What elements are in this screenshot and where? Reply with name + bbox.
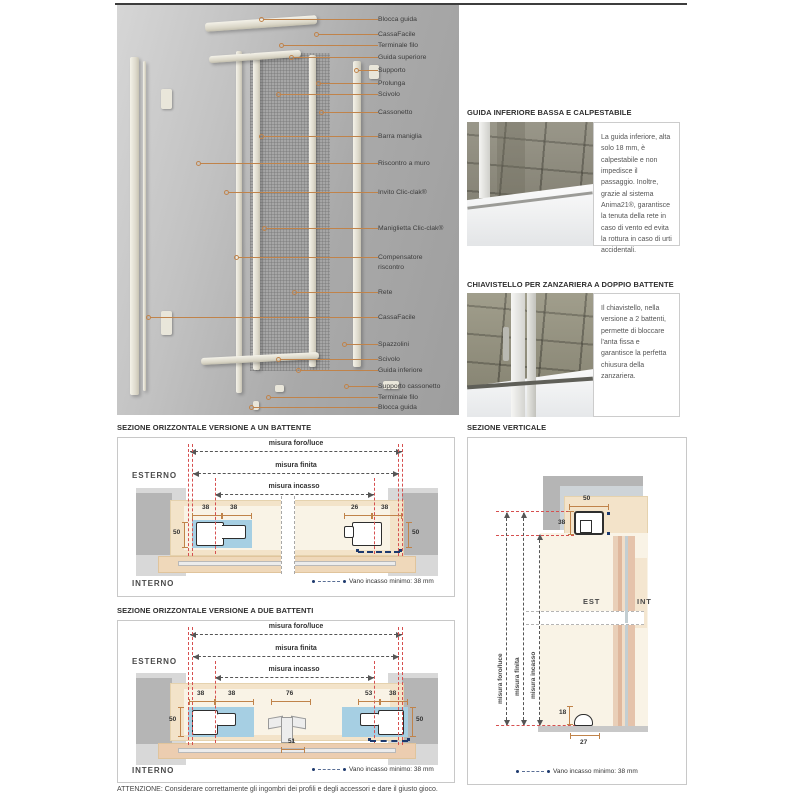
glass-line (625, 611, 628, 623)
legend-dot-icon (343, 768, 346, 771)
part-label: Riscontro a muro (378, 159, 430, 169)
lower-guide-profile (574, 714, 593, 726)
dim-value: 38 (197, 690, 204, 697)
dim-arrow (193, 656, 399, 657)
legend: Vano incasso minimo: 38 mm (312, 766, 434, 773)
part-label: Scivolo (378, 90, 400, 100)
leader-line (346, 344, 378, 345)
vano-incasso-marker (358, 551, 400, 553)
leader-line (263, 19, 378, 20)
reference-line (374, 478, 375, 554)
part-label-row: Guida inferiore (117, 366, 459, 376)
section-one-drawing: misura foro/luce misura finita misura in… (117, 437, 455, 597)
dim-value: 26 (351, 504, 358, 511)
section-two-drawing: misura foro/luce misura finita misura in… (117, 620, 455, 783)
latch-pin (503, 327, 509, 361)
dim-arrow-v (506, 513, 507, 725)
dim-line-v (412, 707, 413, 737)
break-lines (281, 496, 295, 574)
dim-label-finita: misura finita (514, 657, 521, 696)
cassette-arm (217, 713, 236, 726)
dim-arrow (190, 634, 402, 635)
part-label-row: Terminale filo (117, 393, 459, 403)
card1-body: La guida inferiore, alta solo 18 mm, è c… (601, 132, 672, 257)
section-vertical-title: SEZIONE VERTICALE (467, 423, 546, 432)
marker-end (607, 532, 610, 535)
dim-line (222, 515, 252, 516)
reference-line (192, 444, 193, 556)
card1-title: GUIDA INFERIORE BASSA E CALPESTABILE (467, 108, 632, 117)
dim-value: 18 (559, 709, 566, 716)
footer-warning: ATTENZIONE: Considerare correttamente gl… (117, 786, 438, 793)
dim-line (569, 506, 609, 507)
frame-profile (479, 122, 490, 198)
leader-line (280, 94, 378, 95)
part-label: Blocca guida (378, 15, 417, 25)
window-frame (613, 536, 635, 728)
esterno-label: ESTERNO (132, 471, 177, 480)
strike-hook (344, 526, 354, 538)
legend-dash (318, 581, 340, 582)
dim-line (372, 515, 402, 516)
vano-incasso-marker (370, 740, 408, 742)
card2-text-panel: Il chiavistello, nella versione a 2 batt… (593, 293, 680, 417)
leader-line (293, 57, 378, 58)
dim-line (271, 701, 311, 702)
dim-label-foro-luce: misura foro/luce (269, 440, 323, 447)
leader-line (266, 228, 378, 229)
part-label-row: Scivolo (117, 90, 459, 100)
wall (136, 493, 172, 555)
dim-line (192, 515, 222, 516)
marker-end (356, 549, 359, 552)
section-one-title: SEZIONE ORIZZONTALE VERSIONE A UN BATTEN… (117, 423, 311, 432)
est-label: EST (583, 597, 600, 606)
dim-label-finita: misura finita (275, 645, 317, 652)
reference-line (402, 627, 403, 745)
exploded-parts-photo: Blocca guidaCassaFacileTerminale filoGui… (117, 5, 459, 415)
part-label-row: Scivolo (117, 355, 459, 365)
part-label: Guida inferiore (378, 366, 423, 376)
card1-text-panel: La guida inferiore, alta solo 18 mm, è c… (593, 122, 680, 246)
part-label-row: Cassonetto (117, 108, 459, 118)
part-label-row: Supporto (117, 66, 459, 76)
part-label: Blocca guida (378, 403, 417, 413)
dim-line-v (184, 522, 185, 548)
part-label-row: Blocca guida (117, 403, 459, 413)
part-label-row: CassaFacile (117, 313, 459, 323)
int-label: INT (637, 597, 652, 606)
dim-label-incasso: misura incasso (269, 483, 320, 490)
reference-line (374, 661, 375, 743)
dim-arrow-v (523, 513, 524, 725)
dim-line-v (180, 707, 181, 737)
reference-line (215, 478, 216, 554)
legend-text: Vano incasso minimo: 38 mm (553, 768, 638, 775)
reference-line (402, 444, 403, 556)
card2: Il chiavistello, nella versione a 2 batt… (467, 293, 680, 417)
part-label: Supporto (378, 66, 406, 76)
leader-line (150, 317, 378, 318)
dim-value: 38 (230, 504, 237, 511)
leader-line (358, 70, 378, 71)
dim-label-foro-luce: misura foro/luce (269, 623, 323, 630)
part-label: CassaFacile (378, 313, 415, 323)
part-label-row: Supporto cassonetto (117, 382, 459, 392)
dim-label-incasso: misura incasso (269, 666, 320, 673)
card2-body: Il chiavistello, nella versione a 2 batt… (601, 303, 672, 382)
floor (538, 726, 648, 732)
reference-line (188, 444, 189, 556)
dim-arrow (193, 473, 399, 474)
part-label-row: Terminale filo (117, 41, 459, 51)
part-label: Cassonetto (378, 108, 412, 118)
leader-line (200, 163, 378, 164)
part-label-row: Maniglietta Clic-clak® (117, 224, 459, 234)
dim-line-v (408, 522, 409, 548)
legend: Vano incasso minimo: 38 mm (516, 768, 638, 775)
leader-line (280, 359, 378, 360)
frame-profile (527, 293, 536, 417)
part-label: Terminale filo (378, 41, 418, 51)
dim-value: 38 (228, 690, 235, 697)
leader-line (323, 112, 378, 113)
dim-line (570, 735, 600, 736)
part-label-row: Barra maniglia (117, 132, 459, 142)
dim-line-v (570, 511, 571, 535)
card2-photo (467, 293, 593, 417)
wall (136, 678, 172, 744)
leader-line (283, 45, 378, 46)
card1-photo (467, 122, 593, 246)
marker-end (607, 512, 610, 515)
legend-dash (318, 769, 340, 770)
dim-value: 53 (365, 690, 372, 697)
dim-arrow (190, 451, 402, 452)
part-label: Maniglietta Clic-clak® (378, 224, 443, 234)
part-label-row: Riscontro a muro (117, 159, 459, 169)
legend-text: Vano incasso minimo: 38 mm (349, 578, 434, 585)
dim-value: 38 (389, 690, 396, 697)
dim-line (215, 701, 254, 702)
reference-line (496, 535, 574, 536)
wall-strike-profile (352, 522, 382, 546)
part-label-row: Prolunga (117, 79, 459, 89)
dim-arrow (215, 494, 374, 495)
reference-line (398, 627, 399, 745)
dim-line (189, 701, 215, 702)
dim-line-v (569, 706, 570, 725)
part-label-row: Guida superiore (117, 53, 459, 63)
part-label: Supporto cassonetto (378, 382, 440, 392)
dim-value: 51 (288, 738, 295, 745)
part-label-row: Compensatore riscontro (117, 253, 459, 263)
section-vertical-drawing: 50 38 EST INT misura foro/luce misura fi… (467, 437, 687, 785)
interno-label: INTERNO (132, 766, 174, 775)
cassette-inner (580, 520, 592, 533)
part-label: Scivolo (378, 355, 400, 365)
dim-value: 76 (286, 690, 293, 697)
legend-text: Vano incasso minimo: 38 mm (349, 766, 434, 773)
marker-end (407, 738, 410, 741)
legend: Vano incasso minimo: 38 mm (312, 578, 434, 585)
document-page: Blocca guidaCassaFacileTerminale filoGui… (0, 0, 800, 800)
leader-line (238, 257, 378, 258)
part-label-row: Rete (117, 288, 459, 298)
interno-label: INTERNO (132, 579, 174, 588)
dim-value: 50 (412, 529, 419, 536)
leader-line (263, 136, 378, 137)
legend-dot-icon (343, 580, 346, 583)
leader-line (296, 292, 378, 293)
part-label: Compensatore riscontro (378, 253, 440, 273)
dim-arrow (215, 677, 374, 678)
legend-dash (522, 771, 544, 772)
leader-line (318, 34, 378, 35)
leader-line (300, 370, 378, 371)
reference-line (188, 627, 189, 745)
part-label-row: Blocca guida (117, 15, 459, 25)
dim-line (380, 701, 408, 702)
dim-label-finita: misura finita (275, 462, 317, 469)
reference-line (496, 725, 576, 726)
dim-value: 38 (202, 504, 209, 511)
cassette-arm (360, 713, 379, 726)
cassette-profile (378, 710, 404, 735)
card2-title: CHIAVISTELLO PER ZANZARIERA A DOPPIO BAT… (467, 280, 674, 289)
esterno-label: ESTERNO (132, 657, 177, 666)
dim-label-incasso: misura incasso (530, 652, 537, 699)
exploded-labels: Blocca guidaCassaFacileTerminale filoGui… (117, 5, 459, 415)
dim-line (281, 749, 305, 750)
dim-value: 50 (169, 716, 176, 723)
section-two-title: SEZIONE ORIZZONTALE VERSIONE A DUE BATTE… (117, 606, 313, 615)
mesh-shadow (497, 122, 525, 202)
cassette-profile (196, 522, 224, 546)
cassette-arm (222, 525, 246, 539)
part-label-row: CassaFacile (117, 30, 459, 40)
reference-line (398, 444, 399, 556)
part-label: Barra maniglia (378, 132, 422, 142)
dim-value: 50 (416, 716, 423, 723)
card1: La guida inferiore, alta solo 18 mm, è c… (467, 122, 680, 246)
part-label: Terminale filo (378, 393, 418, 403)
part-label: Guida superiore (378, 53, 426, 63)
dim-value: 50 (583, 495, 590, 502)
dim-label-foro-luce: misura foro/luce (497, 653, 504, 704)
part-label: Invito Clic-clak® (378, 188, 427, 198)
dim-arrow-v (539, 535, 540, 725)
dim-line (344, 515, 372, 516)
part-label: Rete (378, 288, 392, 298)
dim-value: 38 (381, 504, 388, 511)
marker-end (368, 738, 371, 741)
dim-line (358, 701, 380, 702)
latch-profile (511, 293, 525, 417)
part-label-row: Spazzolini (117, 340, 459, 350)
dim-value: 50 (173, 529, 180, 536)
reference-line (192, 627, 193, 745)
dim-value: 38 (558, 519, 565, 526)
part-label: CassaFacile (378, 30, 415, 40)
leader-line (228, 192, 378, 193)
legend-dot-icon (312, 768, 315, 771)
leader-line (253, 407, 378, 408)
leader-line (270, 397, 378, 398)
part-label-row: Invito Clic-clak® (117, 188, 459, 198)
dim-value: 27 (580, 739, 587, 746)
legend-dot-icon (547, 770, 550, 773)
legend-dot-icon (516, 770, 519, 773)
part-label: Spazzolini (378, 340, 409, 350)
leader-line (320, 83, 378, 84)
part-label: Prolunga (378, 79, 405, 89)
leader-line (348, 386, 378, 387)
legend-dot-icon (312, 580, 315, 583)
